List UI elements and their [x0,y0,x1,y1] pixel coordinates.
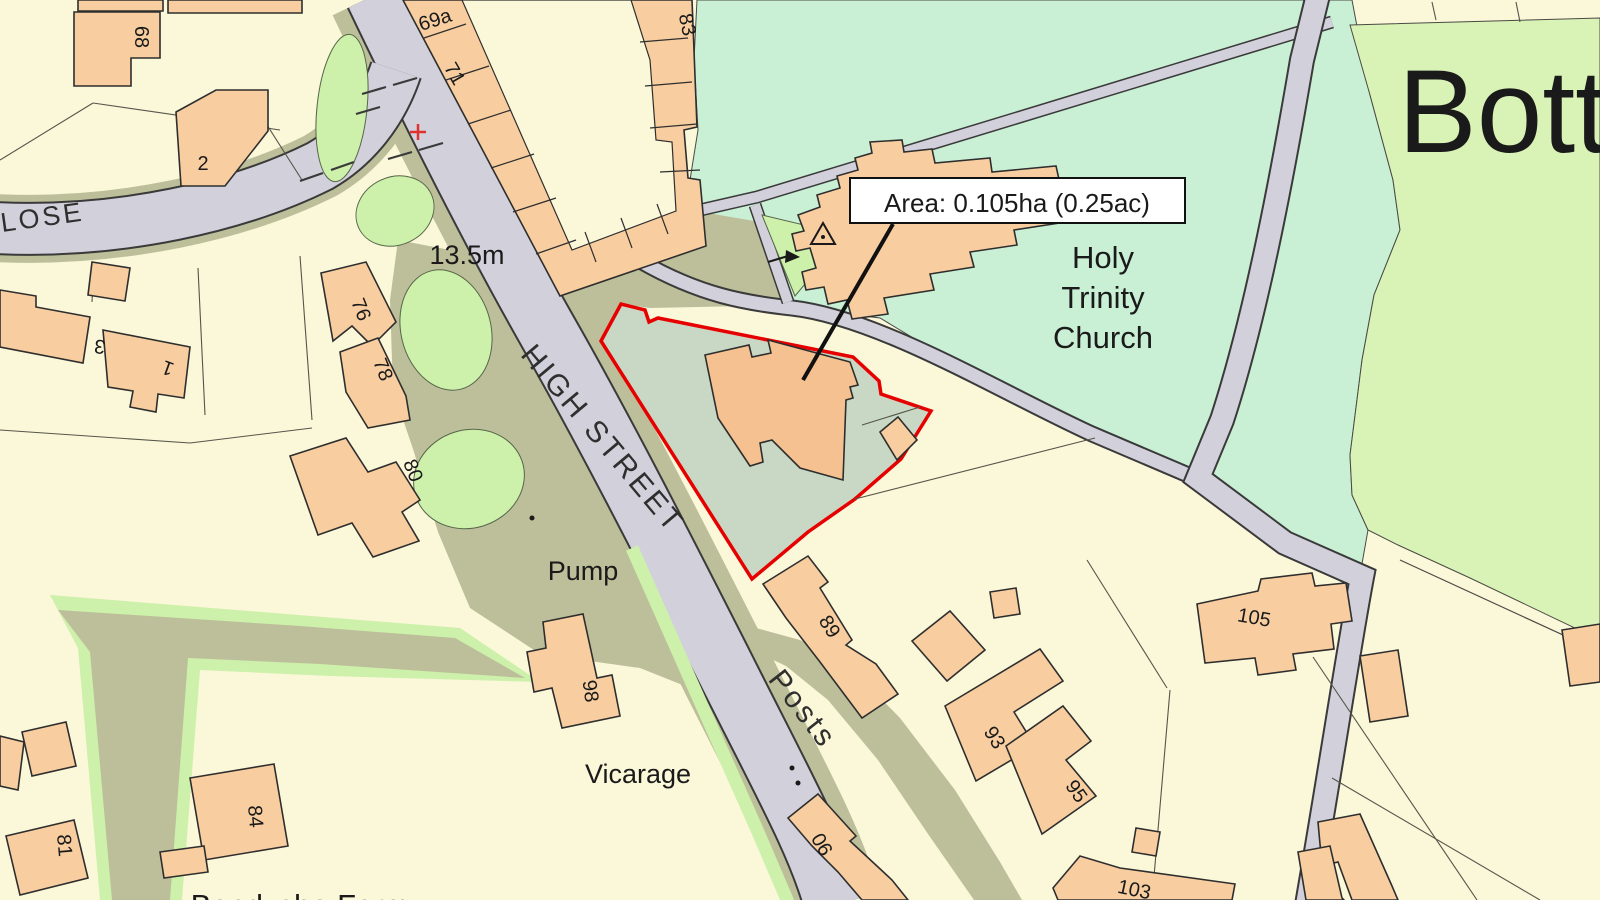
house-number-83: 83 [674,12,700,38]
post-marker [796,781,801,786]
triangulation-dot [821,235,825,239]
post-marker [790,766,795,771]
vicarage-label: Vicarage [585,759,691,789]
house-number-84: 84 [243,804,267,828]
building [990,588,1020,618]
pump-label: Pump [548,556,619,586]
house-number-98: 98 [578,679,603,704]
building [168,0,302,13]
spot-height-label: 13.5m [429,240,504,270]
building [88,262,130,301]
building [160,846,208,878]
house-number-68: 68 [130,26,152,48]
church-label-line2: Trinity [1061,280,1145,315]
house-number-2: 2 [197,153,208,175]
church-label-line3: Church [1053,320,1153,355]
house-number-81: 81 [52,833,76,857]
area-label-text: Area: 0.105ha (0.25ac) [884,188,1150,218]
farm-label: Bendyshe Farm [191,888,410,900]
building [1132,828,1160,856]
church-label-line1: Holy [1072,240,1135,275]
site-plan-map: Area: 0.105ha (0.25ac) 13.5m HIGH STREET… [0,0,1600,900]
pump-marker [530,516,535,521]
settlement-label: Botti [1398,46,1600,178]
building [22,722,76,776]
building [78,0,163,11]
map-viewport: Area: 0.105ha (0.25ac) 13.5m HIGH STREET… [0,0,1600,900]
